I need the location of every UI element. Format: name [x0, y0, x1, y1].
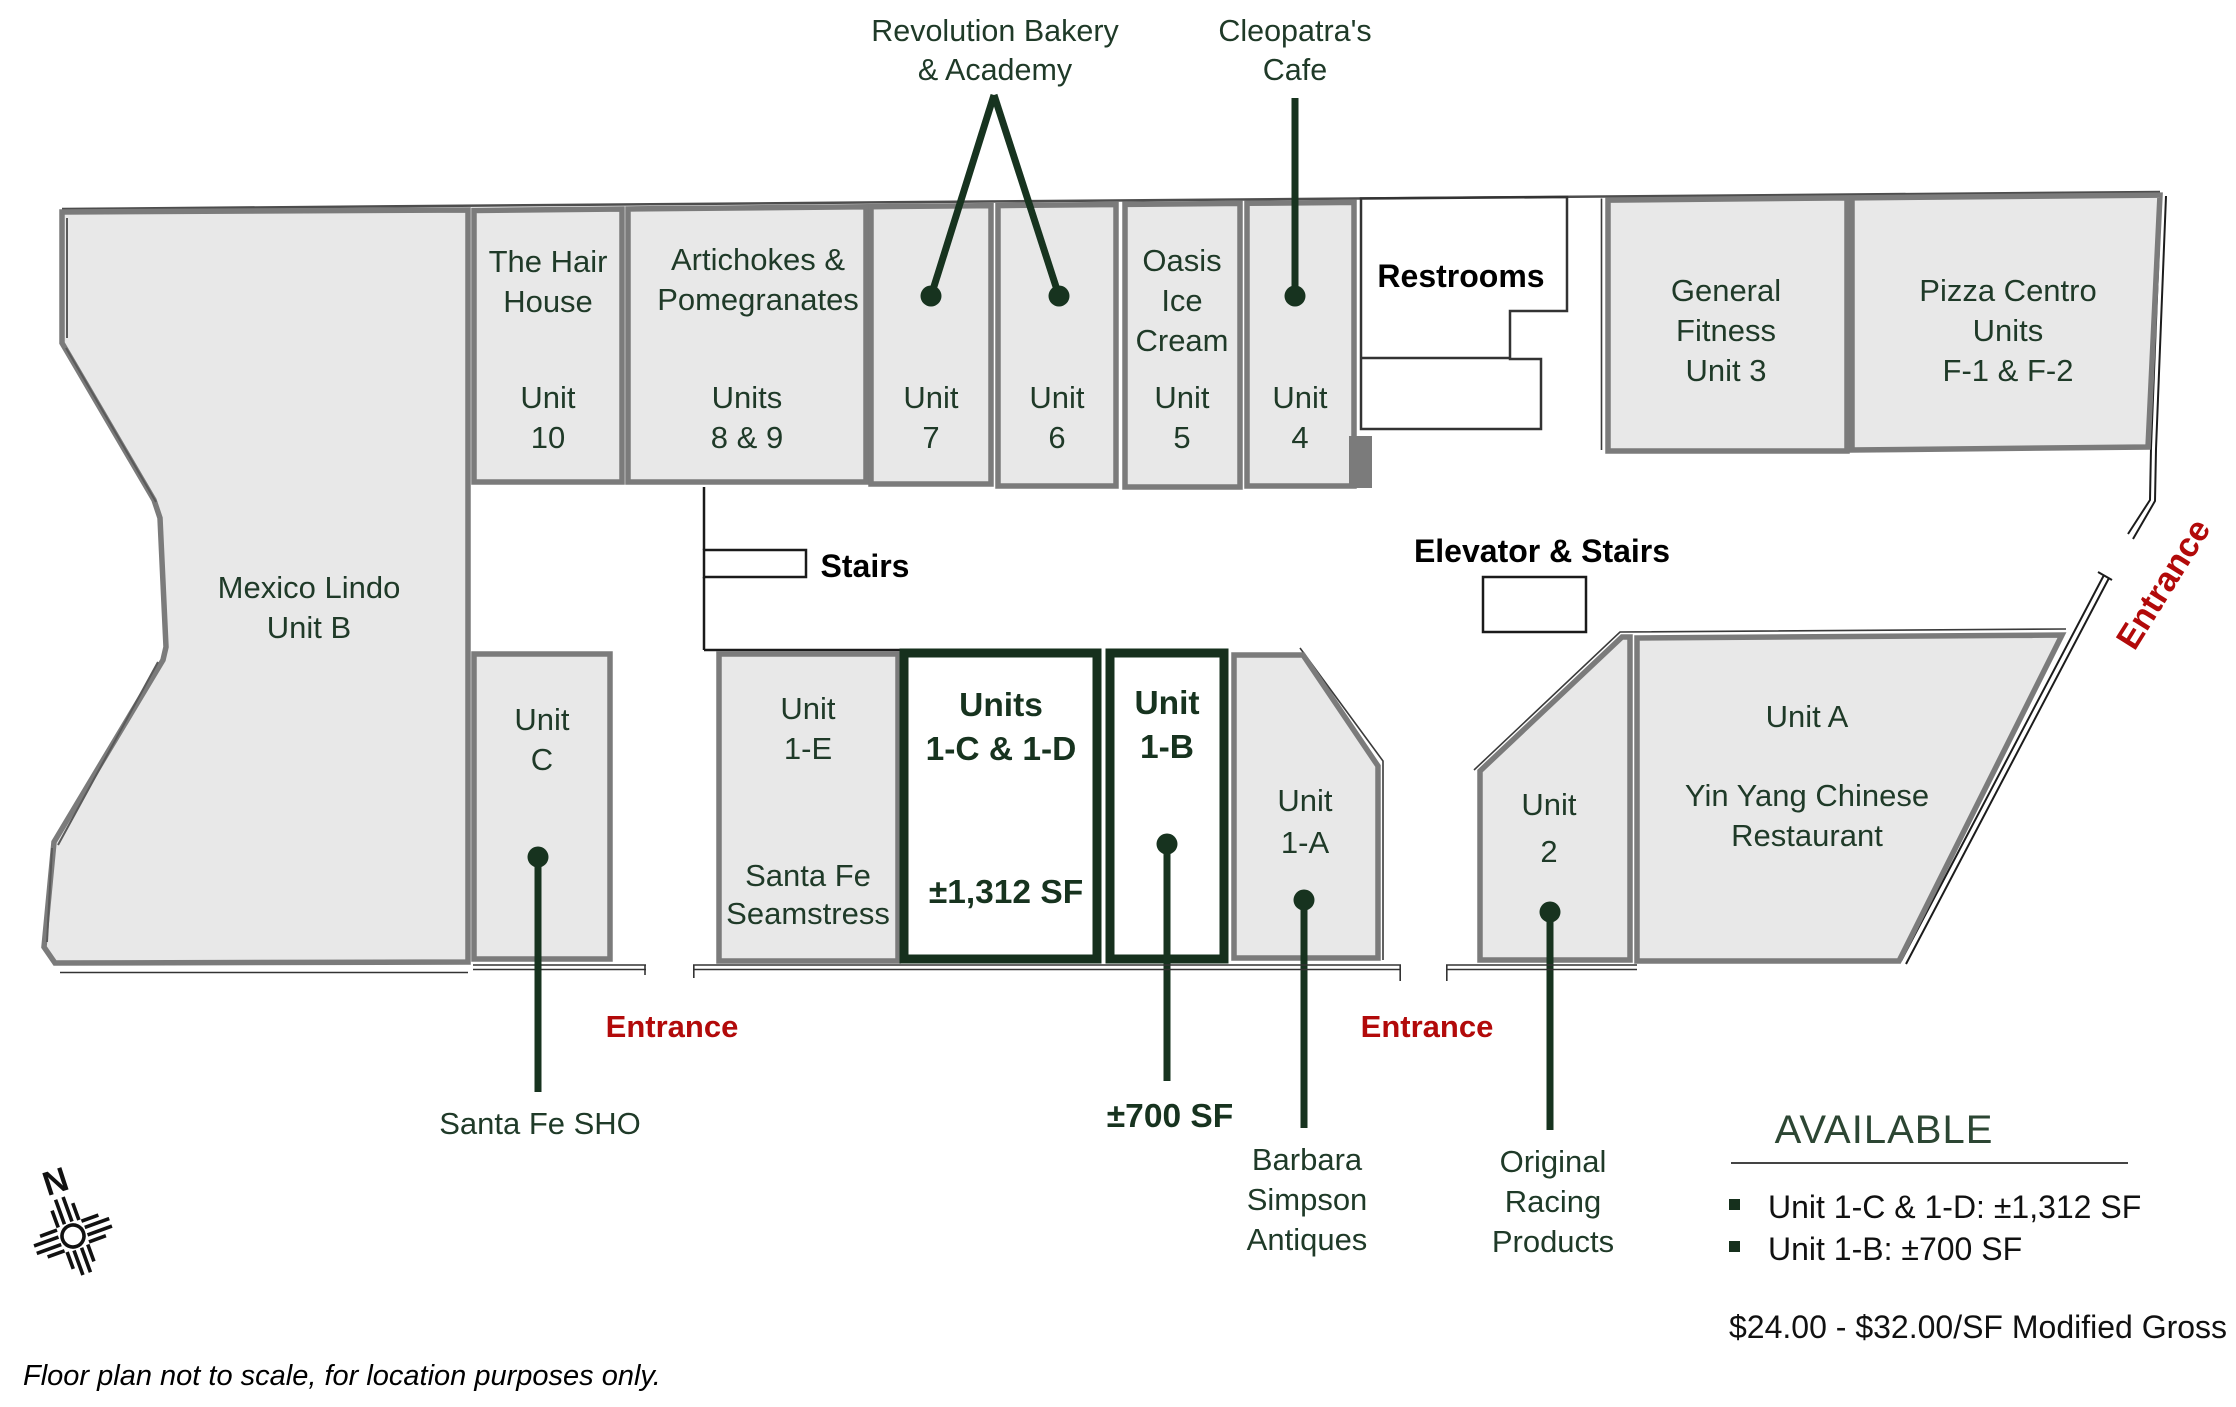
svg-text:Artichokes &: Artichokes &: [671, 242, 845, 277]
svg-text:Restaurant: Restaurant: [1731, 818, 1883, 853]
svg-text:Simpson: Simpson: [1247, 1182, 1368, 1217]
svg-text:House: House: [503, 284, 593, 319]
svg-text:1-A: 1-A: [1281, 825, 1330, 860]
svg-text:Entrance: Entrance: [1361, 1009, 1494, 1044]
svg-text:±700 SF: ±700 SF: [1107, 1098, 1233, 1135]
svg-text:Antiques: Antiques: [1247, 1222, 1368, 1257]
svg-text:Unit: Unit: [1272, 380, 1328, 415]
svg-text:Mexico Lindo: Mexico Lindo: [218, 570, 401, 605]
svg-text:Seamstress: Seamstress: [726, 896, 890, 931]
svg-text:Pomegranates: Pomegranates: [657, 282, 859, 317]
svg-text:Racing: Racing: [1505, 1184, 1602, 1219]
svg-text:Unit 1-B: ±700 SF: Unit 1-B: ±700 SF: [1768, 1231, 2022, 1267]
svg-text:7: 7: [922, 420, 939, 455]
svg-text:5: 5: [1173, 420, 1190, 455]
svg-text:Unit B: Unit B: [267, 610, 351, 645]
svg-text:Santa Fe SHO: Santa Fe SHO: [439, 1106, 641, 1141]
svg-text:6: 6: [1048, 420, 1065, 455]
svg-text:Restrooms: Restrooms: [1377, 258, 1544, 294]
svg-text:1-B: 1-B: [1140, 729, 1194, 766]
svg-text:Unit: Unit: [520, 380, 576, 415]
svg-text:Units: Units: [1973, 313, 2044, 348]
svg-text:Oasis: Oasis: [1142, 243, 1221, 278]
svg-text:Unit A: Unit A: [1766, 699, 1849, 734]
svg-text:Elevator & Stairs: Elevator & Stairs: [1414, 533, 1670, 569]
svg-text:Products: Products: [1492, 1224, 1614, 1259]
svg-text:Units: Units: [959, 687, 1043, 724]
svg-text:Floor plan not to scale, for l: Floor plan not to scale, for location pu…: [23, 1360, 661, 1392]
svg-text:Unit 3: Unit 3: [1686, 353, 1767, 388]
svg-text:Original: Original: [1500, 1144, 1607, 1179]
svg-text:Unit: Unit: [1029, 380, 1085, 415]
svg-text:Santa Fe: Santa Fe: [745, 858, 871, 893]
svg-text:8 & 9: 8 & 9: [711, 420, 783, 455]
svg-text:1-E: 1-E: [784, 731, 832, 766]
svg-text:$24.00 - $32.00/SF Modified Gr: $24.00 - $32.00/SF Modified Gross: [1729, 1309, 2227, 1345]
svg-text:Barbara: Barbara: [1252, 1142, 1363, 1177]
svg-text:Yin Yang Chinese: Yin Yang Chinese: [1685, 778, 1929, 813]
svg-text:Unit: Unit: [1521, 787, 1577, 822]
svg-text:Entrance: Entrance: [2109, 512, 2218, 656]
svg-text:Unit: Unit: [780, 691, 836, 726]
svg-text:N: N: [38, 1160, 73, 1204]
svg-text:Unit: Unit: [514, 702, 570, 737]
svg-text:Cafe: Cafe: [1263, 53, 1327, 87]
svg-text:C: C: [531, 742, 553, 777]
svg-text:Unit 1-C & 1-D: ±1,312 SF: Unit 1-C & 1-D: ±1,312 SF: [1768, 1189, 2141, 1225]
svg-text:Unit: Unit: [1134, 685, 1199, 722]
svg-text:4: 4: [1291, 420, 1308, 455]
svg-text:1-C & 1-D: 1-C & 1-D: [926, 731, 1077, 768]
svg-text:Fitness: Fitness: [1676, 313, 1776, 348]
svg-text:Cleopatra's: Cleopatra's: [1218, 14, 1371, 48]
svg-text:AVAILABLE: AVAILABLE: [1775, 1108, 1994, 1152]
svg-text:Pizza Centro: Pizza Centro: [1919, 273, 2096, 308]
svg-text:10: 10: [531, 420, 565, 455]
svg-text:Cream: Cream: [1135, 323, 1228, 358]
svg-text:Revolution Bakery: Revolution Bakery: [871, 14, 1119, 48]
svg-text:F-1 & F-2: F-1 & F-2: [1943, 353, 2074, 388]
svg-text:Units: Units: [712, 380, 783, 415]
svg-text:& Academy: & Academy: [918, 53, 1073, 87]
svg-text:The Hair: The Hair: [489, 244, 608, 279]
svg-text:Unit: Unit: [903, 380, 959, 415]
svg-text:Ice: Ice: [1161, 283, 1202, 318]
svg-text:Entrance: Entrance: [606, 1009, 739, 1044]
svg-text:Stairs: Stairs: [821, 548, 910, 584]
svg-text:±1,312 SF: ±1,312 SF: [929, 874, 1083, 911]
svg-text:2: 2: [1540, 834, 1557, 869]
svg-text:Unit: Unit: [1154, 380, 1210, 415]
svg-text:General: General: [1671, 273, 1781, 308]
svg-text:Unit: Unit: [1277, 783, 1333, 818]
